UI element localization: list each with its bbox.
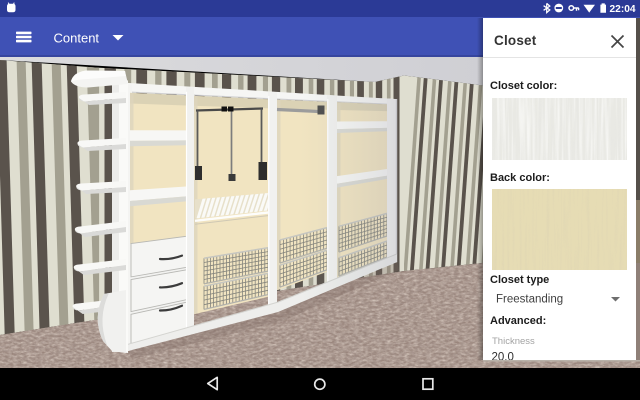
svg-text:Freestanding: Freestanding [496, 294, 563, 306]
svg-text:Closet: Closet [494, 33, 537, 48]
svg-text:Back color:: Back color: [490, 172, 550, 184]
svg-text:22:04: 22:04 [610, 4, 636, 15]
svg-text:Content: Content [54, 31, 100, 46]
svg-text:Closet type: Closet type [490, 274, 549, 286]
svg-text:Thickness: Thickness [492, 336, 535, 347]
svg-text:Advanced:: Advanced: [490, 315, 546, 327]
svg-text:Closet color:: Closet color: [490, 80, 557, 92]
